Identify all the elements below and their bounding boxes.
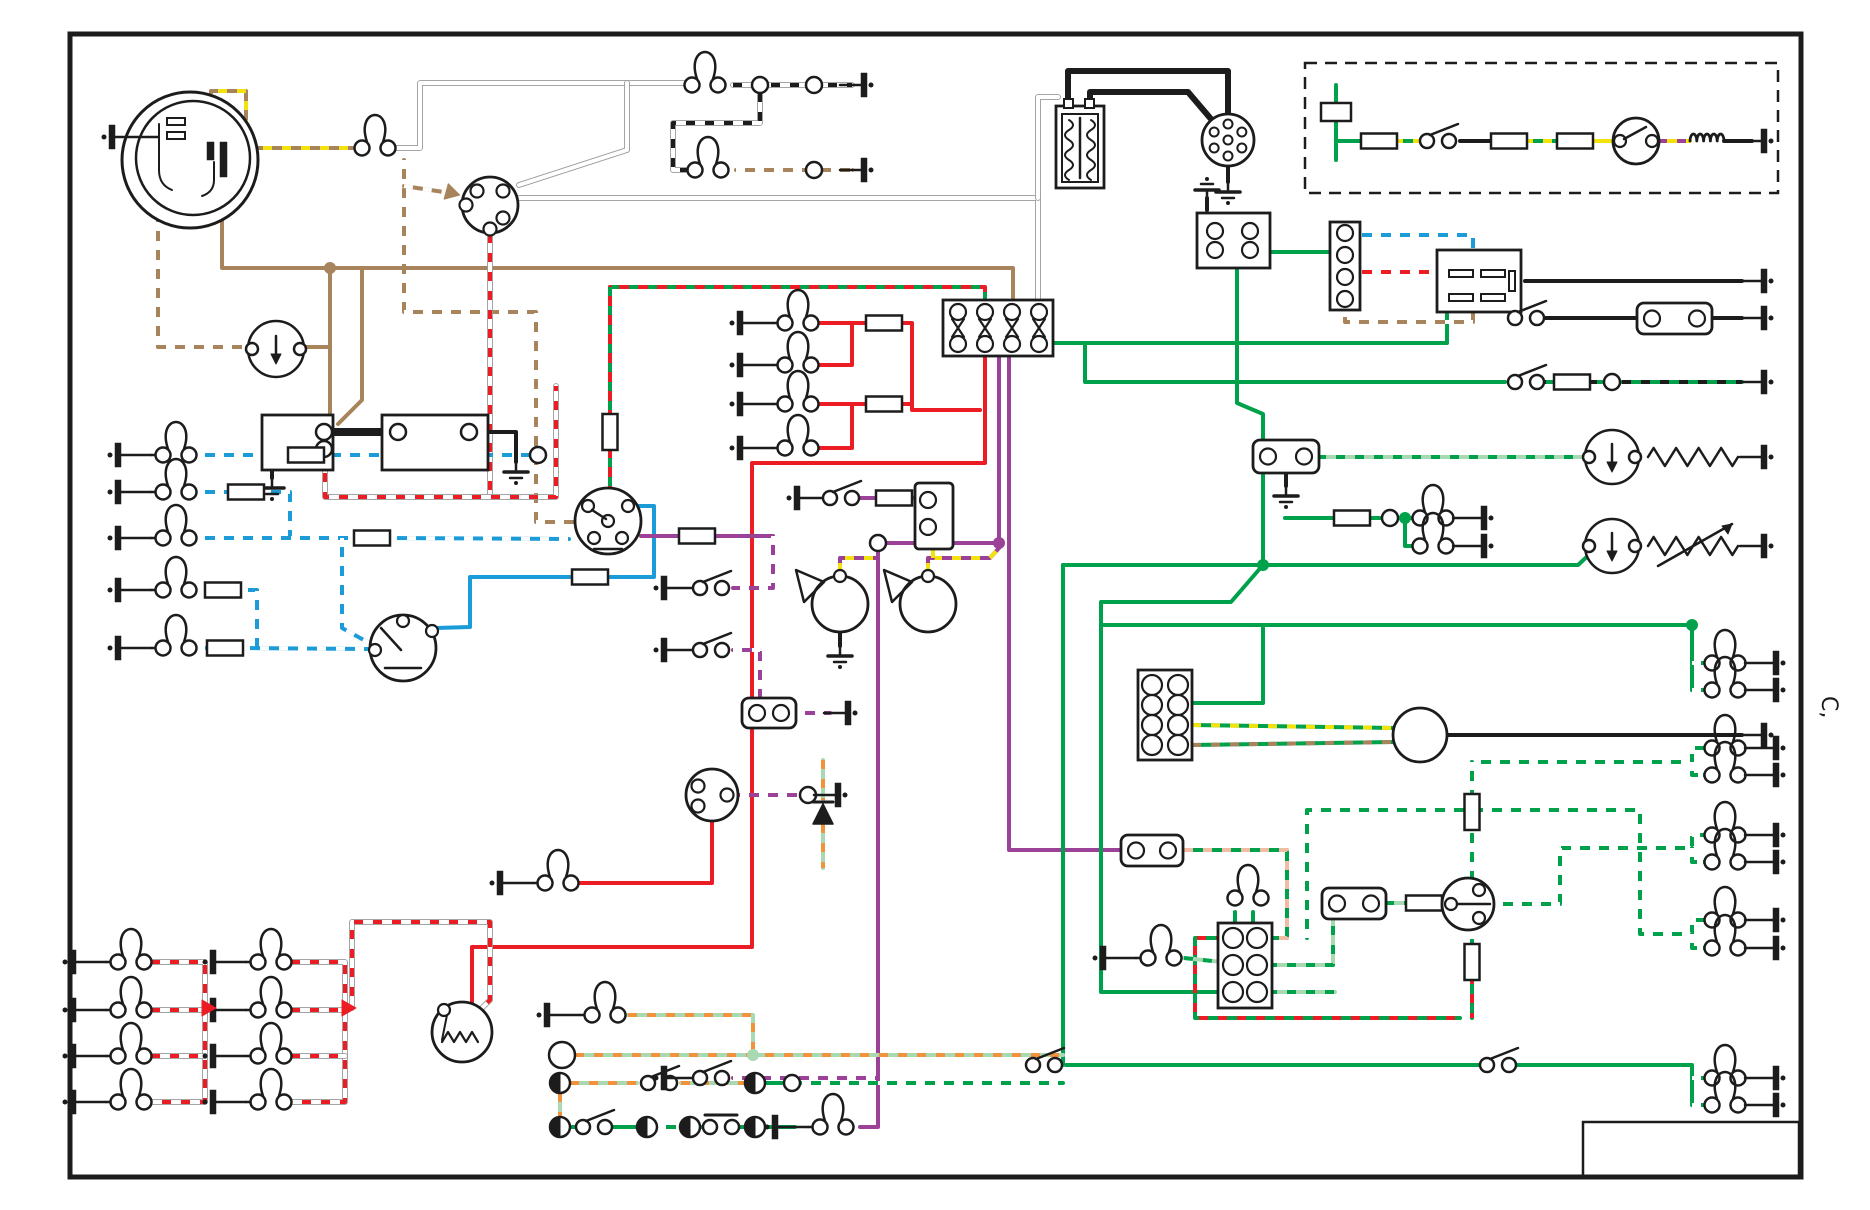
wire [404, 186, 450, 193]
lamp-symbol [108, 422, 197, 466]
gauge-symbol [246, 321, 306, 377]
dip-symbol [369, 615, 438, 681]
motor-symbol [1056, 99, 1104, 188]
wire [820, 404, 852, 448]
wire [928, 548, 999, 572]
term-symbol [1740, 130, 1774, 152]
lamp-symbol [730, 371, 819, 415]
swb-symbol [703, 1115, 739, 1134]
rbox-symbol [742, 698, 796, 728]
wire [1237, 268, 1263, 565]
wire [860, 551, 878, 1127]
corner-mark: C, [1816, 696, 1841, 718]
wire [1192, 742, 1394, 745]
sw-symbol [576, 1110, 614, 1134]
dot-symbol [1686, 619, 1698, 631]
sw-symbol [693, 571, 731, 595]
lamp-symbol [63, 1023, 152, 1067]
wire [519, 198, 1038, 300]
fuse-symbol [876, 491, 912, 506]
lead-symbol [654, 577, 698, 599]
lamp-symbol [203, 977, 292, 1021]
wire [1063, 552, 1592, 565]
wmotor-symbol [1442, 878, 1494, 930]
dot-symbol [324, 262, 336, 274]
fuse-symbol [866, 316, 902, 331]
sw-symbol [1480, 1048, 1518, 1072]
fuse-symbol [1557, 134, 1593, 149]
term-symbol [824, 702, 858, 724]
halfconn-symbol [680, 1117, 700, 1137]
fuse-symbol [1321, 103, 1351, 121]
wire [628, 1015, 753, 1055]
halfconn-symbol [745, 1117, 765, 1137]
fuse-symbol [1361, 134, 1397, 149]
wire [384, 83, 684, 148]
wiring-diagram-page: C, [0, 0, 1870, 1210]
halfconn-symbol [745, 1073, 765, 1093]
wire [519, 83, 627, 185]
rbox-symbol [1253, 440, 1319, 473]
conn-symbol [870, 535, 886, 551]
halfconn-symbol [637, 1117, 657, 1137]
fuse-symbol [228, 485, 264, 500]
gnd-symbol [1274, 482, 1298, 509]
wire [262, 492, 290, 538]
term-symbol [1740, 270, 1774, 292]
wiring-diagram-canvas: C, [0, 0, 1870, 1210]
term-symbol [1740, 724, 1774, 746]
wire [1090, 92, 1211, 119]
coil-symbol [1690, 134, 1724, 141]
wire [1692, 848, 1703, 862]
term-symbol [1740, 535, 1774, 557]
wire [345, 922, 490, 1010]
components [63, 52, 1786, 1138]
bulb-symbol [1228, 865, 1269, 906]
wire [1472, 748, 1703, 762]
dot-symbol [1257, 559, 1269, 571]
edge-mark: C, [1816, 696, 1841, 718]
lamp-symbol [108, 557, 197, 601]
diode-symbol [813, 802, 833, 824]
lamp-symbol [1093, 925, 1182, 969]
lead-symbol [654, 639, 698, 661]
horn-symbol [796, 570, 868, 632]
gnd-symbol [1195, 177, 1219, 204]
swc-symbol [1613, 118, 1659, 164]
bulb-symbol [685, 52, 726, 93]
wire [1692, 934, 1703, 948]
lamp-symbol [490, 850, 579, 894]
lamp-symbol [203, 929, 292, 973]
conn-symbol [461, 424, 477, 440]
fuse-symbol [288, 448, 324, 463]
conn-symbol [784, 1075, 800, 1091]
fuse-symbol [354, 531, 390, 546]
fuse-symbol [1406, 896, 1442, 911]
halfconn-symbol [550, 1117, 570, 1137]
sw-symbol [1026, 1048, 1064, 1072]
bulb-symbol [688, 137, 729, 178]
wire [338, 268, 362, 424]
conn-symbol [1604, 374, 1620, 390]
gnd-symbol [504, 458, 528, 485]
lamp-symbol [203, 1069, 292, 1113]
wire [578, 820, 712, 883]
conn-symbol [806, 162, 822, 178]
wire [1188, 625, 1263, 703]
fuse-symbol [1334, 511, 1370, 526]
wire [1268, 920, 1333, 965]
gauge-symbol [1583, 519, 1641, 573]
fuse-symbol [603, 414, 618, 450]
lamp-symbol [203, 1023, 292, 1067]
dot-symbol [1399, 512, 1411, 524]
bigconn-symbol [549, 1042, 575, 1068]
fuse-symbol [1465, 944, 1480, 980]
sol-symbol [1202, 114, 1254, 166]
wire [1053, 313, 1447, 343]
wire [820, 323, 852, 365]
dynamo-symbol [122, 92, 258, 228]
term-symbol [1740, 307, 1774, 329]
term-symbol [840, 159, 874, 181]
dot-symbol [993, 537, 1005, 549]
fuse-symbol [1491, 134, 1527, 149]
lampR-symbol [1705, 715, 1786, 759]
grid-symbol [1330, 222, 1360, 310]
lamp-symbol [63, 929, 152, 973]
circle-symbol [1393, 708, 1447, 762]
wire [1184, 958, 1222, 962]
conn-symbol [806, 77, 822, 93]
fuse-symbol [679, 529, 715, 544]
conn-symbol [390, 424, 406, 440]
lamp-symbol [63, 1069, 152, 1113]
wire [436, 577, 574, 628]
lamp-symbol [63, 977, 152, 1021]
wire [1494, 835, 1703, 904]
lampR-symbol [1705, 887, 1786, 931]
boxc-symbol [1197, 213, 1270, 268]
conn-symbol [316, 424, 332, 440]
rbox-symbol [1121, 835, 1183, 866]
lampR-symbol [1705, 1045, 1786, 1089]
lamp-symbol [730, 415, 819, 459]
sw-symbol [823, 481, 861, 505]
fuse-symbol [572, 570, 608, 585]
lampR-symbol [1705, 802, 1786, 846]
wire [222, 172, 1013, 300]
fusebox-symbol [943, 300, 1053, 356]
wire [342, 538, 371, 644]
rheo-symbol [1648, 524, 1738, 566]
term-symbol [840, 74, 874, 96]
conn-symbol [530, 447, 546, 463]
wire [472, 350, 985, 1002]
fuse-symbol [866, 397, 902, 412]
wire [733, 650, 760, 698]
fuse-symbol [1465, 794, 1480, 830]
cap-symbol [460, 177, 519, 236]
dot-symbol [747, 1049, 759, 1061]
gauge-symbol [1583, 430, 1641, 484]
horn-symbol [884, 570, 956, 632]
lampR-symbol [1413, 485, 1494, 529]
arrow-symbol [444, 184, 462, 203]
term-symbol [1740, 371, 1774, 393]
wire [388, 538, 569, 539]
wire [1692, 762, 1703, 775]
lampR-symbol [1705, 630, 1786, 674]
wire [1509, 1065, 1692, 1105]
lamp-symbol [108, 505, 197, 549]
grid-symbol [1218, 923, 1272, 1008]
diagram-svg: C, [0, 0, 1870, 1210]
wire [241, 648, 370, 649]
rbox-symbol [1322, 888, 1386, 919]
wire [1192, 725, 1394, 728]
wire [151, 962, 205, 1102]
halfconn-symbol [550, 1073, 570, 1093]
wire [1085, 343, 1505, 382]
sw-symbol [1420, 124, 1458, 148]
grid-symbol [1138, 670, 1192, 760]
fuse-symbol [207, 641, 243, 656]
rheoc-symbol [432, 1002, 492, 1062]
res-symbol [1648, 448, 1738, 466]
lamp-symbol [765, 1094, 854, 1138]
lamp-symbol [108, 615, 197, 659]
wire [840, 558, 876, 572]
rboxv-symbol [915, 483, 953, 549]
conn-symbol [752, 77, 768, 93]
ign-symbol [575, 488, 641, 554]
lamp-symbol [537, 982, 626, 1026]
sw-symbol [693, 633, 731, 657]
fuse-symbol [205, 583, 241, 598]
fuse-symbol [1554, 375, 1590, 390]
wire [291, 962, 345, 1102]
lamp-symbol [730, 290, 819, 334]
gnd-symbol [828, 642, 852, 669]
sw-symbol [1508, 365, 1546, 389]
rbox-symbol [1637, 303, 1712, 334]
tabrelay-symbol [1437, 250, 1521, 312]
cap-symbol [686, 769, 738, 821]
bulb-symbol [355, 115, 396, 156]
term-symbol [1740, 446, 1774, 468]
conn-symbol [1382, 510, 1398, 526]
lamp-symbol [730, 332, 819, 376]
